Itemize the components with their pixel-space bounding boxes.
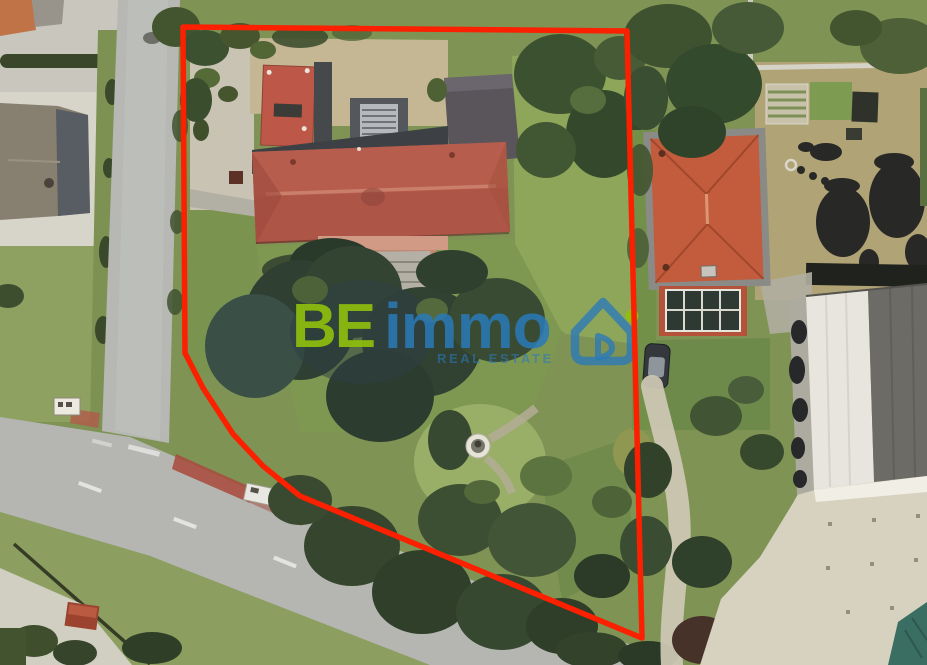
garden-beds <box>766 84 808 124</box>
watermark-tagline: REAL ESTATE <box>437 351 554 366</box>
hedge-row <box>0 54 112 68</box>
west-neighbour-block <box>0 0 122 430</box>
gray-roof-corner <box>32 0 64 27</box>
warehouse-roof-dark <box>868 284 927 482</box>
satellite-scene: BE immo REAL ESTATE <box>0 0 927 665</box>
aerial-photo: BE immo REAL ESTATE <box>0 0 927 665</box>
watermark-brand-be: BE <box>292 292 374 361</box>
watermark-door-icon <box>598 336 612 358</box>
garden-fountain <box>466 434 490 458</box>
orange-roof-corner <box>0 0 36 36</box>
warehouse-roof-white <box>806 290 874 490</box>
outbuilding-red-roof <box>261 65 316 147</box>
neighbor-conservatory <box>659 286 747 336</box>
red-shed-roof <box>64 602 99 630</box>
